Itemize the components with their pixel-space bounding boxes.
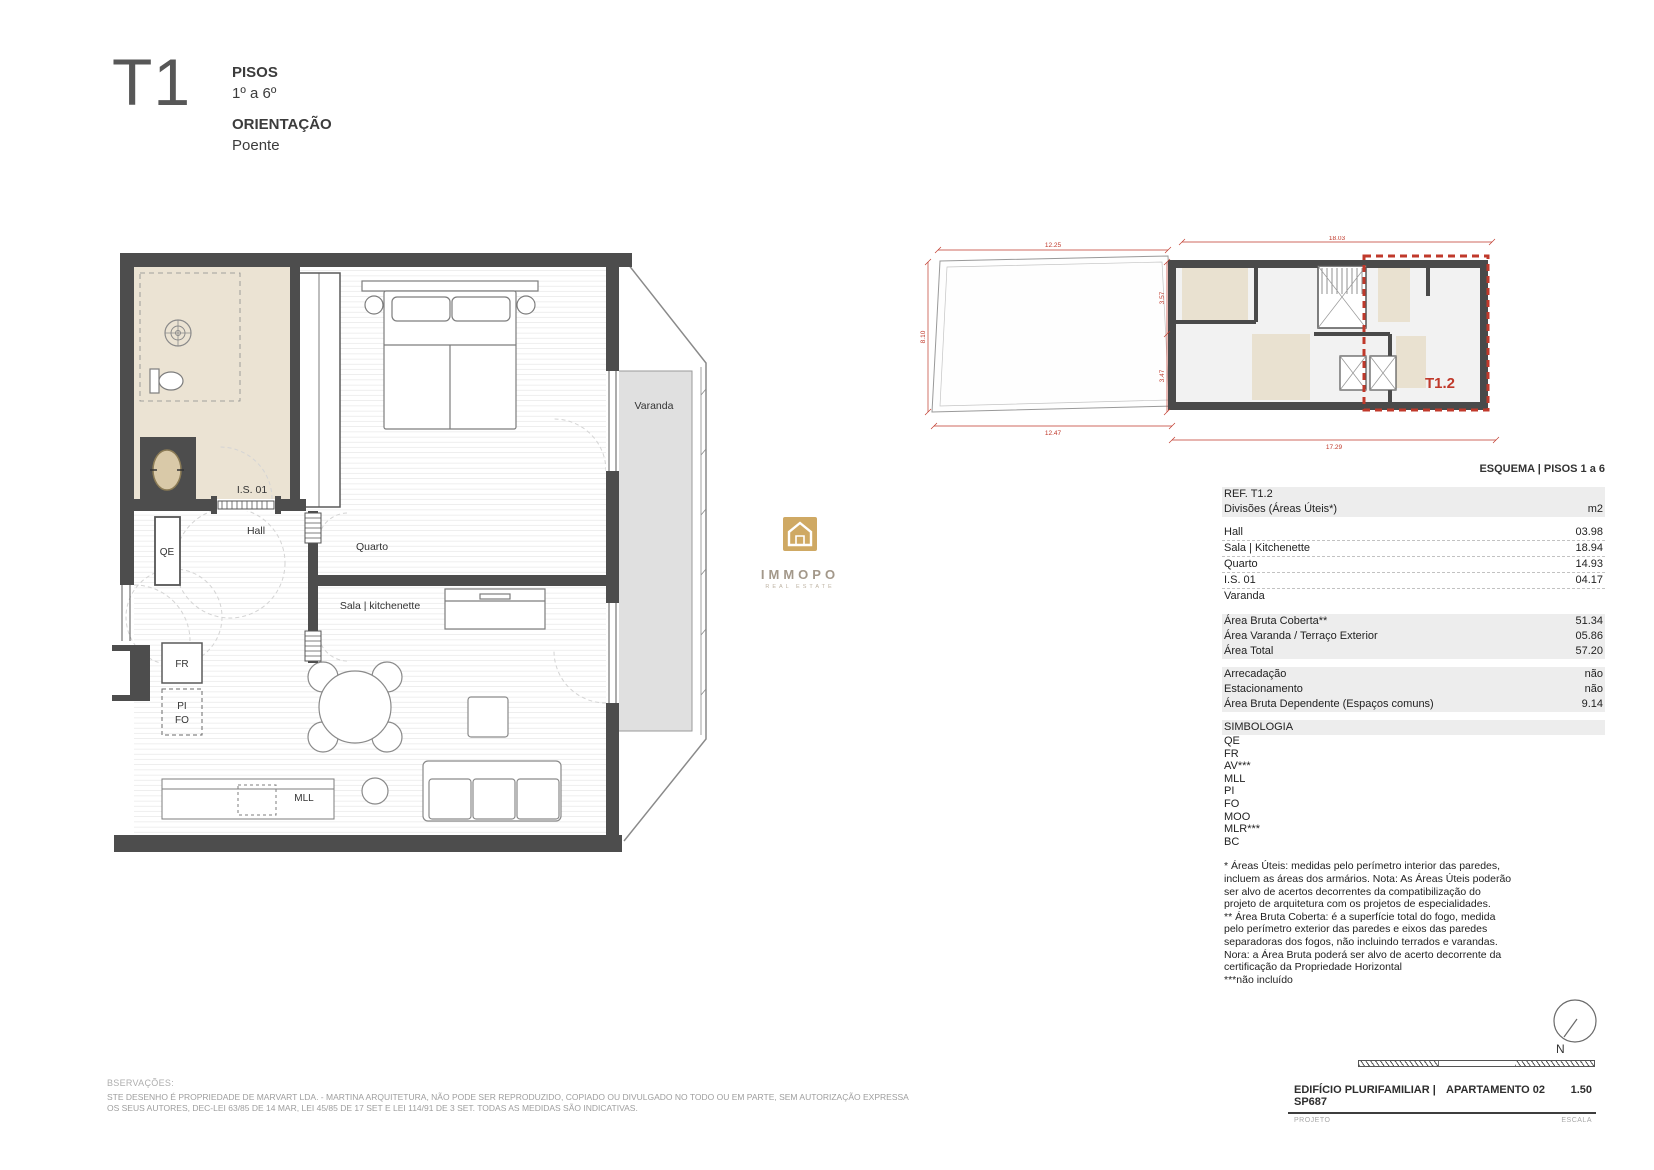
simbologia-item: MLL <box>1222 773 1605 786</box>
header-meta: PISOS 1º a 6º ORIENTAÇÃO Poente <box>232 62 332 156</box>
north-label: N <box>1556 1042 1565 1056</box>
immopo-logo-icon <box>780 514 820 554</box>
table-row: Estacionamento não <box>1222 682 1605 697</box>
immopo-logo-title: IMMOPO <box>745 567 855 582</box>
table-row: Área Varanda / Terraço Exterior 05.86 <box>1222 629 1605 644</box>
areas-footnote: * Áreas Úteis: medidas pelo perímetro in… <box>1222 860 1605 986</box>
scale-label: ESCALA <box>1561 1117 1592 1124</box>
graphic-scale-bar <box>1358 1060 1595 1067</box>
area-label: Área Bruta Coberta** <box>1224 614 1327 629</box>
areas-table: REF. T1.2 Divisões (Áreas Úteis*) m2 Hal… <box>1222 487 1605 986</box>
area-value: 51.34 <box>1575 614 1603 629</box>
extra-value: 9.14 <box>1582 697 1603 712</box>
room-label: Varanda <box>1224 589 1265 604</box>
project-title: EDIFÍCIO PLURIFAMILIAR | SP687 <box>1294 1084 1446 1108</box>
simbologia-item: QE <box>1222 735 1605 748</box>
table-row: Área Bruta Coberta** 51.34 <box>1222 614 1605 629</box>
project-label: PROJETO <box>1294 1117 1330 1124</box>
sink-nook <box>140 437 196 503</box>
hall-label: Hall <box>247 525 265 537</box>
unit-header: m2 <box>1588 502 1603 517</box>
scale-hatch-right <box>1515 1061 1594 1066</box>
floor-plan: Varanda <box>112 245 712 860</box>
area-value: 57.20 <box>1575 644 1603 659</box>
dim-top-right: 18.03 <box>1329 236 1346 242</box>
north-compass-icon: N <box>1549 997 1601 1057</box>
table-row: Área Bruta Dependente (Espaços comuns) 9… <box>1222 697 1605 712</box>
mll-label: MLL <box>294 793 314 804</box>
room-value: 14.93 <box>1575 557 1603 572</box>
observacoes-label: BSERVAÇÕES: <box>107 1078 174 1088</box>
simbologia-item: AV*** <box>1222 760 1605 773</box>
table-header-row: Divisões (Áreas Úteis*) m2 <box>1222 502 1605 517</box>
simbologia-item: MOO <box>1222 811 1605 824</box>
dim-mid-upper: 3.57 <box>1159 291 1166 304</box>
fo-label: FO <box>175 715 189 726</box>
unit-type-title: T1 <box>112 44 191 120</box>
quarto-label: Quarto <box>356 541 388 553</box>
apartment-title: APARTAMENTO 02 <box>1446 1084 1571 1108</box>
title-block: EDIFÍCIO PLURIFAMILIAR | SP687 APARTAMEN… <box>1288 1084 1596 1124</box>
room-value: 04.17 <box>1575 573 1603 588</box>
simbologia-title-row: SIMBOLOGIA <box>1222 720 1605 735</box>
table-row: Área Total 57.20 <box>1222 644 1605 659</box>
room-value: 03.98 <box>1575 525 1603 540</box>
bed <box>362 281 538 429</box>
simbologia-item: FR <box>1222 748 1605 761</box>
pi-label: PI <box>177 701 186 712</box>
dim-left: 8.10 <box>920 330 927 343</box>
sofa <box>423 761 561 821</box>
immopo-logo-subtitle: REAL ESTATE <box>745 584 855 590</box>
disclaimer-line1: STE DESENHO É PROPRIEDADE DE MARVART LDA… <box>107 1092 909 1103</box>
pisos-label: PISOS <box>232 62 332 83</box>
table-ref-row: REF. T1.2 <box>1222 487 1605 502</box>
orientacao-label: ORIENTAÇÃO <box>232 114 332 135</box>
extra-value: não <box>1585 667 1603 682</box>
extra-label: Arrecadação <box>1224 667 1286 682</box>
table-row: Quarto 14.93 <box>1222 557 1605 573</box>
extra-value: não <box>1585 682 1603 697</box>
simbologia-item: BC <box>1222 836 1605 849</box>
building-schema: T1.2 12.25 18.03 8.10 3.57 3.47 12.47 17… <box>920 236 1560 456</box>
dim-bottom-left: 12.47 <box>1045 430 1062 437</box>
room-label: I.S. 01 <box>1224 573 1256 588</box>
extra-label: Estacionamento <box>1224 682 1303 697</box>
varanda-balcony <box>616 259 706 841</box>
table-ref: REF. T1.2 <box>1224 487 1273 502</box>
esquema-caption: ESQUEMA | PISOS 1 a 6 <box>1222 463 1605 475</box>
room-label: Hall <box>1224 525 1243 540</box>
room-label: Sala | Kitchenette <box>1224 541 1310 556</box>
table-row: Arrecadação não <box>1222 667 1605 682</box>
scale-value: 1.50 <box>1571 1084 1592 1108</box>
area-label: Área Total <box>1224 644 1273 659</box>
wardrobe <box>298 273 340 507</box>
scale-mid <box>1438 1061 1515 1066</box>
orientacao-value: Poente <box>232 135 332 156</box>
qe-label: QE <box>160 547 175 558</box>
divisions-header: Divisões (Áreas Úteis*) <box>1224 502 1337 517</box>
sala-label: Sala | kitchenette <box>340 600 421 612</box>
room-label: Quarto <box>1224 557 1258 572</box>
pisos-value: 1º a 6º <box>232 83 332 104</box>
t12-unit-label: T1.2 <box>1425 375 1455 392</box>
fr-label: FR <box>175 659 188 670</box>
dim-bottom: 17.29 <box>1326 444 1343 451</box>
coffee-table <box>468 697 508 737</box>
schema-terrace <box>932 256 1175 412</box>
scale-hatch-left <box>1359 1061 1438 1066</box>
is01-label: I.S. 01 <box>237 484 268 496</box>
extra-label: Área Bruta Dependente (Espaços comuns) <box>1224 697 1434 712</box>
immopo-logo: IMMOPO REAL ESTATE <box>745 514 855 590</box>
table-row: Hall 03.98 <box>1222 525 1605 541</box>
disclaimer-line2: OS SEUS AUTORES, DEC-LEI 63/85 DE 14 MAR… <box>107 1103 909 1114</box>
dim-mid-lower: 3.47 <box>1159 369 1166 382</box>
simbologia-item: PI <box>1222 785 1605 798</box>
room-value: 18.94 <box>1575 541 1603 556</box>
varanda-label: Varanda <box>635 400 674 412</box>
simbologia-title: SIMBOLOGIA <box>1224 720 1293 735</box>
table-row: Sala | Kitchenette 18.94 <box>1222 541 1605 557</box>
area-label: Área Varanda / Terraço Exterior <box>1224 629 1378 644</box>
dim-top-left: 12.25 <box>1045 242 1062 249</box>
side-pouf <box>362 778 388 804</box>
table-row: I.S. 01 04.17 <box>1222 573 1605 589</box>
legal-disclaimer: STE DESENHO É PROPRIEDADE DE MARVART LDA… <box>107 1092 909 1113</box>
sideboard <box>445 589 545 629</box>
area-value: 05.86 <box>1575 629 1603 644</box>
simbologia-item: MLR*** <box>1222 823 1605 836</box>
dining-table <box>308 662 402 752</box>
wall-notch <box>112 651 130 695</box>
table-row: Varanda <box>1222 589 1605 604</box>
simbologia-item: FO <box>1222 798 1605 811</box>
